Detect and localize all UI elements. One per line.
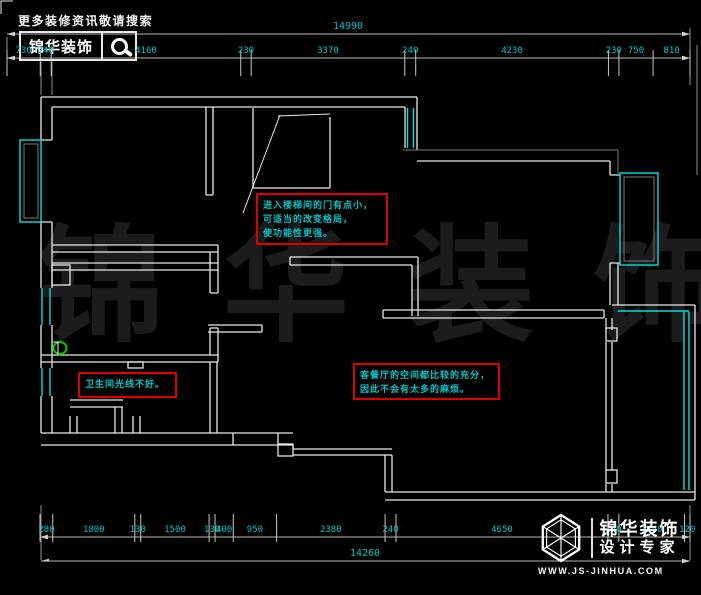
annotation-line: 卫生间光线不好。 — [85, 377, 170, 391]
search-slogan: 更多装修资讯敬请搜索 — [18, 12, 153, 29]
extension-lines — [7, 28, 697, 560]
walls — [41, 97, 695, 500]
footer-website-url: WWW.JS-JINHUA.COM — [538, 566, 701, 576]
door-post-block — [606, 470, 617, 483]
annotation-line: 进入楼梯间的门有点小， — [263, 198, 381, 212]
dimension-total-bottom: 14260 — [350, 548, 380, 559]
magnifier-cell — [103, 33, 135, 59]
annotation-line: 使功能性更强。 — [263, 226, 381, 240]
magnifier-icon — [111, 38, 128, 55]
wall-tab — [128, 362, 143, 368]
annotation-note-stairs: 进入楼梯间的门有点小， 可适当的改变格局， 使功能性更强。 — [256, 193, 388, 245]
annotation-line: 可适当的改变格局， — [263, 212, 381, 226]
column-block — [52, 265, 70, 285]
footer-brand-name: 锦华装饰 — [600, 520, 680, 539]
green-fixture-symbol — [53, 342, 67, 354]
cad-floorplan-screenshot: 锦 华 装 饰 — [0, 0, 701, 595]
company-logo-block: 锦华装饰 设计专家 WWW.JS-JINHUA.COM — [538, 513, 701, 576]
brand-name: 锦华装饰 — [21, 33, 101, 59]
brand-search-box: 锦华装饰 — [19, 31, 137, 61]
floorplan-drawing — [0, 0, 701, 595]
viewport-corner-mark — [1, 1, 13, 14]
dimension-total-top: 14990 — [333, 21, 363, 32]
footer-tagline: 设计专家 — [600, 539, 680, 556]
bay-window-right — [620, 173, 658, 265]
annotation-line: 因此不会有太多的麻烦。 — [360, 382, 493, 396]
divider — [591, 518, 593, 558]
annotation-note-living: 客餐厅的空间都比较的充分， 因此不会有太多的麻烦。 — [353, 363, 500, 400]
dimension-lines — [7, 32, 690, 564]
threshold-block — [278, 444, 293, 456]
annotation-line: 客餐厅的空间都比较的充分， — [360, 368, 493, 382]
annotation-note-bath: 卫生间光线不好。 — [78, 372, 177, 398]
cube-logo-icon — [538, 513, 584, 563]
